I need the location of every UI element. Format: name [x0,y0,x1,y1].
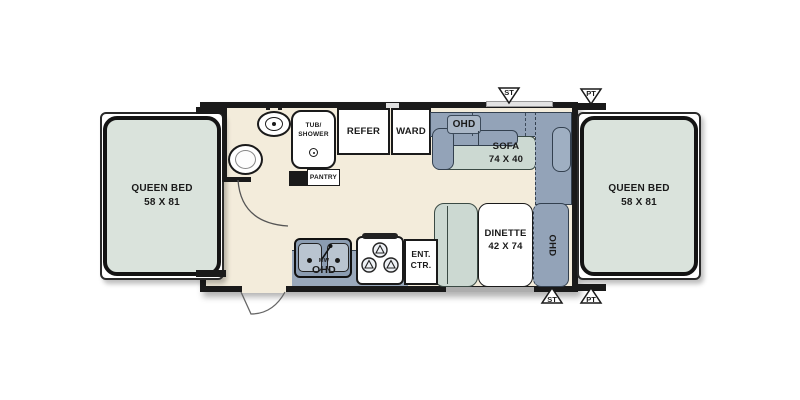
stove [356,236,404,285]
dinette-overhead-cabinet: OHD [533,203,569,287]
right-bed-label: QUEEN BED 58 X 81 [589,182,689,209]
toilet-bowl-icon [235,150,256,169]
dinette-bench-seam [447,206,448,284]
left-slideout-bottom-wall [196,270,226,277]
right-bed-name: QUEEN BED [589,182,689,196]
marker-pt-top-icon: PT [581,89,601,104]
ent-line1: ENT. [404,249,438,260]
right-bed-size: 58 X 81 [589,196,689,210]
tub-shower-label: TUB/ SHOWER [291,122,336,140]
shower-drain-dot-icon [313,152,316,155]
sofa-armrest-left [432,128,454,170]
entry-door-swing-arc [241,292,285,314]
bath-faucet-handle-icon [266,106,270,110]
right-slideout-top-wall [574,103,606,110]
stove-backsplash [362,233,398,239]
right-slideout-bottom-wall [574,284,606,291]
marker-st-bottom-label: ST [547,295,557,304]
dinette-ohd-label: OHD [545,234,558,256]
dinette-label: DINETTE 42 X 74 [478,228,533,254]
sofa-name: SOFA [466,141,546,154]
bathroom-wall-vertical [222,108,227,182]
entry-door-opening [242,285,286,293]
cabinet-block [289,171,307,186]
cabinet-divider-line [525,113,526,136]
entertainment-center-label: ENT. CTR. [404,249,438,272]
ent-line2: CTR. [404,260,438,271]
marker-pt-bottom-label: PT [586,295,596,304]
refrigerator-label: REFER [337,126,390,139]
marker-pt-top-label: PT [586,89,596,98]
sofa-ohd-label: OHD [447,118,481,132]
left-bed-label: QUEEN BED 58 X 81 [112,182,212,209]
pantry-label: PANTRY [307,174,340,183]
marker-st-top-label: ST [504,88,514,97]
kitchen-ohd-label: OHD [296,263,352,277]
wardrobe-label: WARD [391,126,431,139]
dinette-name: DINETTE [478,228,533,241]
sofa-armrest-right [552,127,571,172]
sofa-size: 74 X 40 [466,154,546,167]
dinette-window [446,287,534,292]
left-bed-name: QUEEN BED [112,182,212,196]
sofa-label: SOFA 74 X 40 [466,141,546,167]
dinette-size: 42 X 74 [478,241,533,254]
tub-label-line2: SHOWER [291,131,336,140]
floorplan-canvas: QUEEN BED 58 X 81 QUEEN BED 58 X 81 TUB/… [0,0,800,400]
left-bed-size: 58 X 81 [112,196,212,210]
bathroom-wall-horizontal [222,177,251,182]
top-wall-vent [386,103,399,108]
bath-faucet-handle-icon [278,106,282,110]
tub-label-line1: TUB/ [291,122,336,131]
dinette-bench [434,203,478,287]
slide-topper-flange [486,101,553,107]
bath-sink-drain-icon [272,122,276,126]
